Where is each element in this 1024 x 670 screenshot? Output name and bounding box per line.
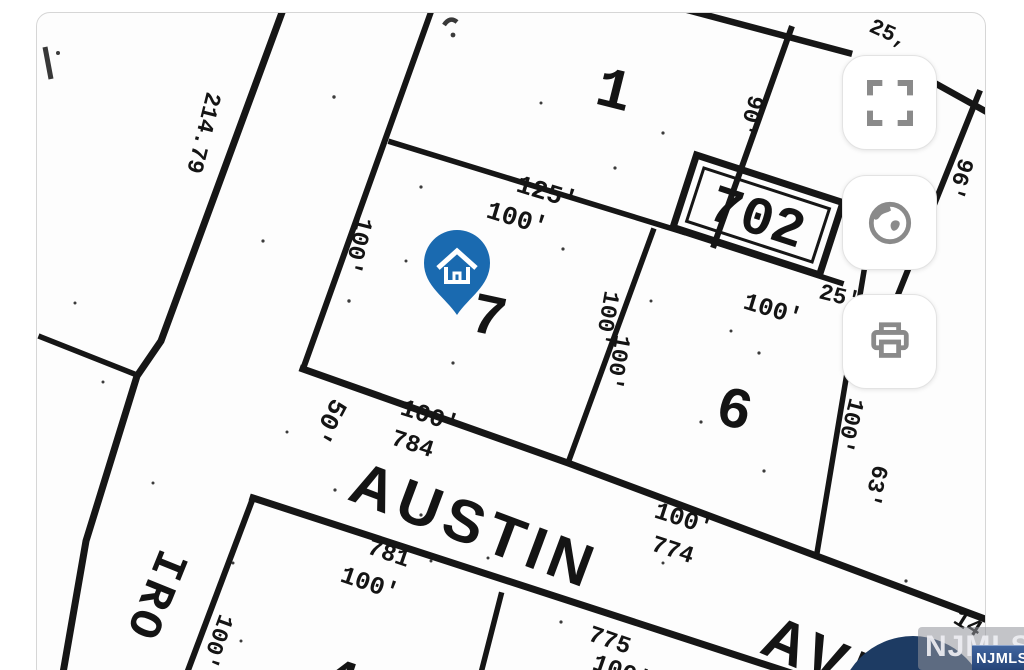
screenshot-stage: 702 214.79 100' 125' 100' 90' 96' 25, 10… bbox=[0, 0, 1024, 670]
njmls-logo-badge: NJMLS bbox=[972, 645, 1024, 670]
dim-label: 63' bbox=[857, 462, 892, 508]
map-type-button[interactable] bbox=[842, 175, 937, 270]
print-button[interactable] bbox=[842, 294, 937, 389]
lot-number-6: 6 bbox=[708, 377, 758, 449]
globe-icon bbox=[867, 200, 913, 246]
dim-label: 50' bbox=[304, 393, 352, 448]
dim-label: 100' bbox=[336, 214, 376, 276]
dim-label: 96' bbox=[941, 155, 979, 202]
dim-label: 774 bbox=[648, 532, 697, 571]
block-number-box: 702 bbox=[673, 155, 843, 275]
fullscreen-icon bbox=[867, 80, 913, 126]
dim-label: 214.79 bbox=[180, 89, 225, 176]
dim-label: 90' bbox=[732, 92, 768, 139]
lot-number-1: 1 bbox=[589, 57, 639, 128]
printer-icon bbox=[867, 319, 913, 365]
fullscreen-button[interactable] bbox=[842, 55, 937, 150]
lot-number-4: 4 bbox=[314, 646, 366, 670]
dim-label: 100' bbox=[740, 288, 806, 333]
dim-label: 25, bbox=[865, 15, 911, 54]
street-name-iro: IRO bbox=[112, 542, 196, 649]
dim-label: 781 bbox=[363, 535, 413, 575]
